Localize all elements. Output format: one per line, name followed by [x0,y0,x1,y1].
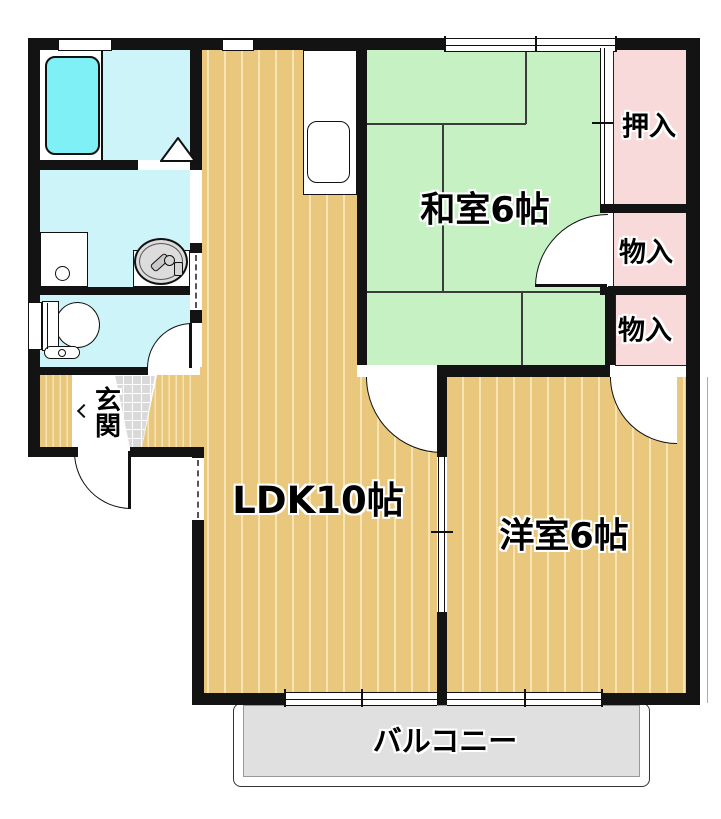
balcony-label: バルコニー [373,718,517,760]
room-label-yoshitsu: 洋室6帖 [499,508,628,559]
front-door-arc [74,452,131,509]
room-label-genkan: 玄関 [88,386,125,438]
room-label-oshiire: 押入 [622,105,676,144]
bathroom-window [58,39,112,51]
ldk-yoshitsu-sliding-door [437,457,447,612]
fusuma-line [600,48,601,204]
fusuma-tick [592,122,613,124]
sliding-door-line [438,457,439,612]
tatami-line [521,291,523,366]
front-door-leaf [128,451,131,509]
room-label-ldk: LDK10帖 [232,470,403,524]
kitchen-window [222,39,254,51]
window-tick [361,689,363,707]
toilet-door-leaf [189,323,192,368]
wall-leftcol-ldk-b [190,243,202,253]
monoire-upper-door-leaf [535,284,607,287]
room-label-washitsu: 和室6帖 [420,182,549,233]
washitsu-window [445,38,616,52]
bathroom-folding-door-icon [160,137,196,162]
room-label-monoire-lower: 物入 [618,309,672,348]
wall-washitsu-yoshitsu [437,365,610,377]
window-center-line [445,45,616,46]
window-tick [284,689,286,707]
exterior-boundary-line [707,377,708,703]
wall-toilet-entry [40,367,148,375]
bathroom-divider-line [101,50,103,160]
wall-monoire-lower-stub [600,365,610,377]
sliding-door-line [444,457,445,612]
wall-bottom [192,693,700,705]
window-tick [615,36,617,52]
washitsu-door-leaf [437,377,445,453]
wall-washroom-toilet [40,287,202,295]
toilet-window [28,302,42,350]
washitsu-door-threshold [363,365,440,377]
window-tick [444,36,446,52]
oshiire-fusuma [600,48,613,204]
wall-bath-washroom [40,160,138,170]
wall-ldk-yoshitsu-b [437,612,447,693]
wall-monoire-divider [600,286,700,295]
window-tick [535,36,537,52]
toilet-threshold [148,367,192,375]
bathtub [45,56,100,155]
tatami-line [525,48,527,124]
toilet-bowl [55,302,100,348]
floor-plan: LDK10帖 和室6帖 洋室6帖 押入 物入 物入 玄関 バルコニー [0,0,721,819]
wall-monoire-lower-west [605,295,615,365]
tatami-line [367,291,607,293]
faucet-tap-icon [174,262,183,276]
kitchen-sink [307,121,350,183]
window-tick [524,689,526,707]
fusuma-line [604,48,605,204]
sliding-door-tick [431,531,453,533]
washing-machine-drain [55,266,70,281]
wall-oshiire-monoire [600,204,700,213]
wall-ldk-washitsu [357,48,367,365]
washroom-door-opening [190,170,202,243]
wall-right [686,38,700,705]
toilet-base-button [58,349,66,357]
toilet-tank-line [47,303,48,349]
dashed-opening-line [195,255,197,308]
wall-left [28,38,40,457]
tatami-line [367,123,526,125]
monoire-lower-threshold [610,366,686,377]
window-tick [601,689,603,707]
dashed-opening-line [197,460,199,518]
toilet-tank [42,301,59,351]
room-label-monoire-upper: 物入 [619,231,673,270]
entry-hall-floor-left [40,375,72,447]
wall-leftcol-ldk-c [190,310,202,323]
